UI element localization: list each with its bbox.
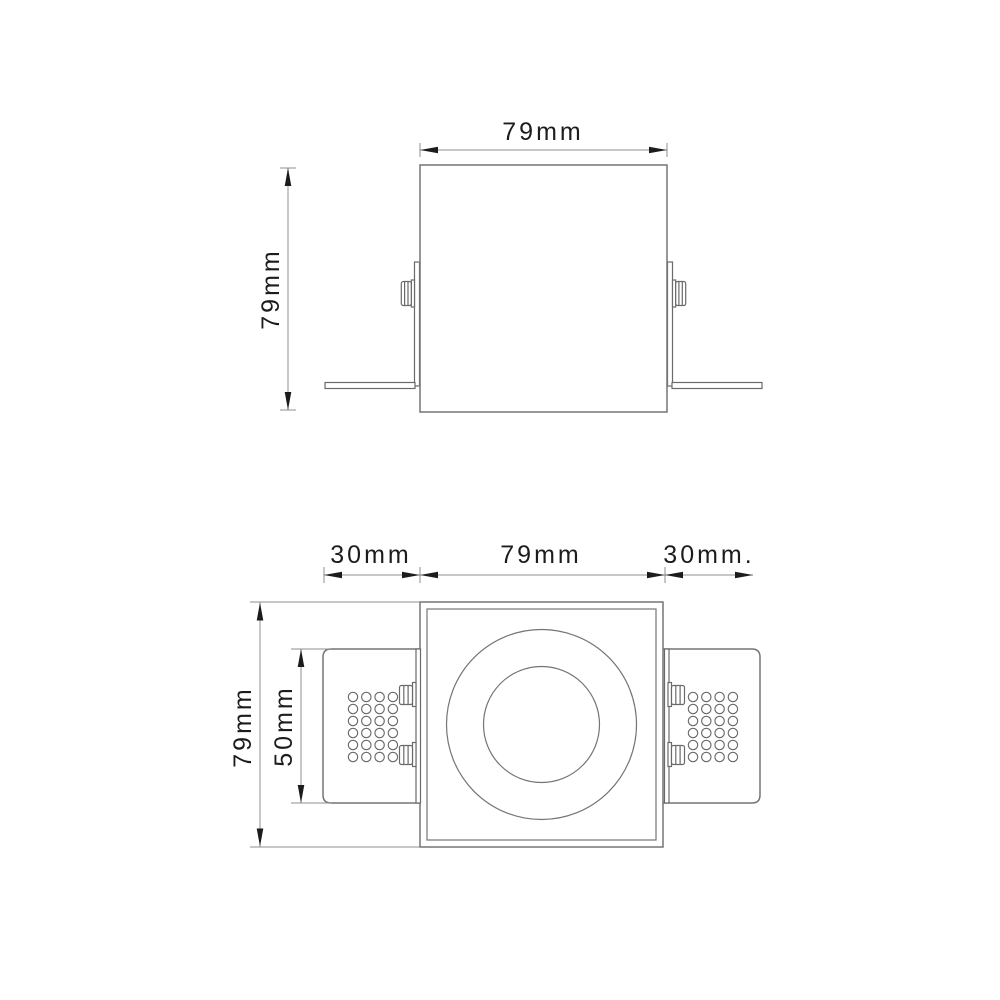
perforation-hole xyxy=(688,728,697,737)
plan-view: 30mm 79mm 30mm. 79mm xyxy=(229,541,760,847)
arrowhead-right xyxy=(402,572,420,579)
plan-right-top-bolt xyxy=(668,683,685,707)
plan-wing-height-dimension: 50mm xyxy=(270,649,331,803)
arrowhead-up xyxy=(257,603,264,621)
right-wing-width-label: 30mm. xyxy=(663,541,754,569)
perforation-hole xyxy=(688,752,697,761)
front-width-label: 79mm xyxy=(502,118,583,146)
perforation-hole xyxy=(715,716,724,725)
front-right-bracket-strip xyxy=(668,262,673,386)
perforation-hole xyxy=(715,752,724,761)
perforation-hole xyxy=(702,704,711,713)
front-height-label: 79mm xyxy=(257,248,285,329)
perforation-hole xyxy=(362,692,371,701)
perforation-hole xyxy=(348,728,357,737)
arrowhead-right xyxy=(649,147,667,154)
wing-height-label: 50mm xyxy=(270,685,298,766)
bolt-head xyxy=(401,282,411,306)
arrowhead-left xyxy=(324,572,342,579)
arrowhead-down xyxy=(298,785,305,803)
bolt-head xyxy=(676,282,686,306)
perforation-hole xyxy=(688,716,697,725)
perforation-hole xyxy=(728,704,737,713)
perforation-hole xyxy=(728,716,737,725)
perforation-hole xyxy=(715,704,724,713)
plan-right-wing xyxy=(662,649,760,803)
perforation-hole xyxy=(388,752,397,761)
front-right-flange xyxy=(672,383,762,389)
perforation-hole xyxy=(728,728,737,737)
perforation-hole xyxy=(375,704,384,713)
front-left-bolt xyxy=(401,280,414,307)
perforation-hole xyxy=(348,692,357,701)
plan-left-top-bolt xyxy=(400,683,417,707)
plan-body-width-dimension: 79mm xyxy=(420,541,665,583)
body-width-label: 79mm xyxy=(500,541,581,569)
arrowhead-up xyxy=(285,168,292,186)
perforation-hole xyxy=(348,740,357,749)
arrowhead-left xyxy=(420,147,438,154)
perforation-hole xyxy=(362,740,371,749)
perforation-hole xyxy=(728,740,737,749)
perforation-hole xyxy=(362,716,371,725)
perforation-hole xyxy=(702,716,711,725)
perforation-hole xyxy=(702,740,711,749)
arrowhead-up xyxy=(298,649,305,667)
plan-left-bottom-bolt xyxy=(400,743,417,767)
plan-left-wing-width-dimension: 30mm xyxy=(324,541,420,583)
perforation-hole xyxy=(715,692,724,701)
perforation-hole xyxy=(388,704,397,713)
perforation-hole xyxy=(702,692,711,701)
perforation-hole xyxy=(728,752,737,761)
perforation-hole xyxy=(715,740,724,749)
front-left-flange xyxy=(325,383,415,389)
perforation-hole xyxy=(388,728,397,737)
plan-frame-outer xyxy=(420,602,663,847)
perforation-hole xyxy=(375,716,384,725)
arrowhead-left xyxy=(420,572,438,579)
bolt-head xyxy=(400,746,413,765)
perforation-hole xyxy=(688,692,697,701)
perforation-hole xyxy=(348,704,357,713)
drawing-svg: 79mm 79mm xyxy=(0,0,1000,1000)
perforation-hole xyxy=(688,704,697,713)
plan-right-bracket-strip xyxy=(665,649,670,803)
bolt-head xyxy=(672,746,685,765)
perforation-hole xyxy=(728,692,737,701)
bolt-head xyxy=(672,686,685,705)
perforation-hole xyxy=(348,752,357,761)
front-body-outline xyxy=(420,165,667,412)
plan-left-wing xyxy=(323,649,421,803)
perforation-hole xyxy=(702,728,711,737)
perforation-hole xyxy=(702,752,711,761)
plan-right-wing-width-dimension: 30mm. xyxy=(663,541,754,578)
front-right-bolt xyxy=(673,280,686,307)
perforation-hole xyxy=(375,692,384,701)
perforation-hole xyxy=(362,704,371,713)
perforation-hole xyxy=(348,716,357,725)
arrowhead-right xyxy=(735,572,753,579)
perforation-hole xyxy=(715,728,724,737)
arrowhead-down xyxy=(257,829,264,847)
arrowhead-right xyxy=(647,572,665,579)
perforation-hole xyxy=(388,716,397,725)
perforation-hole xyxy=(375,752,384,761)
perforation-hole xyxy=(388,740,397,749)
plan-left-bracket-strip xyxy=(416,649,421,803)
arrowhead-down xyxy=(285,392,292,410)
front-view: 79mm 79mm xyxy=(257,118,762,412)
perforation-hole xyxy=(375,740,384,749)
plan-right-bottom-bolt xyxy=(668,743,685,767)
bolt-head xyxy=(400,686,413,705)
perforation-hole xyxy=(362,752,371,761)
front-height-dimension: 79mm xyxy=(257,168,296,410)
perforation-hole xyxy=(688,740,697,749)
front-left-bracket-strip xyxy=(415,262,420,386)
plan-height-label: 79mm xyxy=(229,686,257,767)
perforation-hole xyxy=(388,692,397,701)
arrowhead-left xyxy=(665,572,683,579)
technical-drawing: 79mm 79mm xyxy=(0,0,1000,1000)
front-width-dimension: 79mm xyxy=(420,118,667,157)
perforation-hole xyxy=(375,728,384,737)
left-wing-width-label: 30mm xyxy=(330,541,411,569)
perforation-hole xyxy=(362,728,371,737)
